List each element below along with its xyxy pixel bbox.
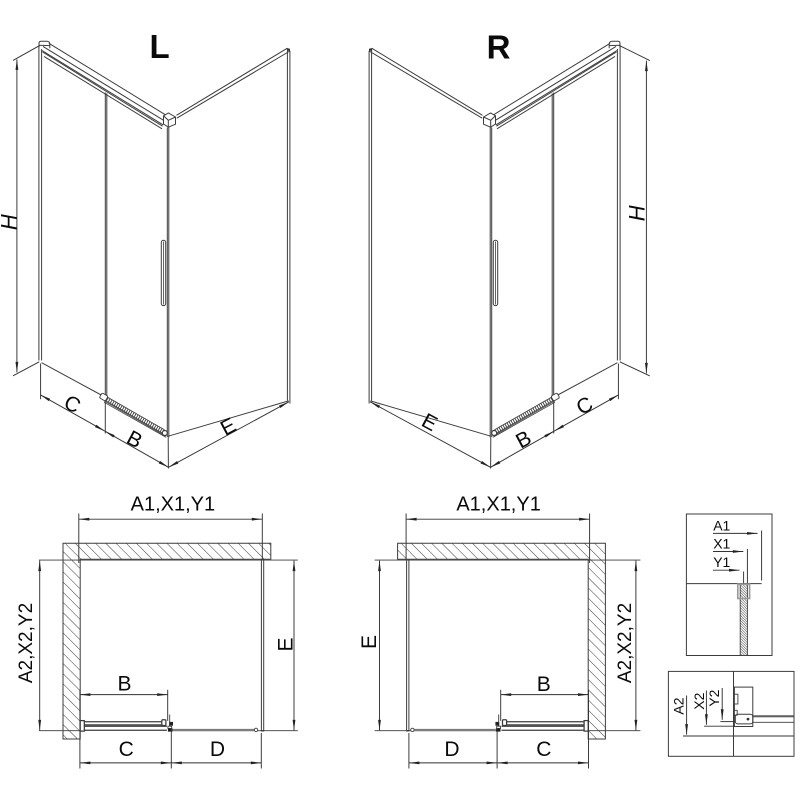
svg-text:B: B bbox=[123, 426, 146, 453]
svg-text:C: C bbox=[119, 738, 134, 761]
svg-text:H: H bbox=[624, 205, 649, 221]
svg-text:L: L bbox=[150, 28, 170, 65]
svg-text:E: E bbox=[418, 409, 441, 436]
svg-text:Y1: Y1 bbox=[713, 554, 730, 570]
svg-text:X1: X1 bbox=[713, 535, 730, 551]
svg-text:B: B bbox=[512, 426, 535, 453]
svg-text:R: R bbox=[487, 29, 511, 66]
svg-text:E: E bbox=[217, 414, 240, 441]
svg-text:X2: X2 bbox=[691, 692, 707, 709]
svg-text:C: C bbox=[573, 392, 597, 419]
svg-text:C: C bbox=[60, 391, 84, 418]
svg-text:H: H bbox=[0, 214, 21, 230]
svg-text:E: E bbox=[358, 635, 381, 649]
svg-text:A1,X1,Y1: A1,X1,Y1 bbox=[131, 494, 216, 516]
svg-text:A2: A2 bbox=[671, 697, 687, 714]
svg-text:C: C bbox=[536, 738, 551, 761]
svg-text:A2,X2,Y2: A2,X2,Y2 bbox=[16, 603, 37, 683]
svg-text:E: E bbox=[275, 637, 298, 651]
svg-text:D: D bbox=[210, 738, 225, 761]
svg-text:B: B bbox=[117, 673, 131, 696]
svg-text:B: B bbox=[537, 673, 551, 696]
svg-text:D: D bbox=[444, 738, 459, 761]
svg-text:Y2: Y2 bbox=[706, 689, 722, 706]
svg-text:A1: A1 bbox=[713, 518, 730, 534]
svg-text:A2,X2,Y2: A2,X2,Y2 bbox=[615, 603, 636, 683]
svg-text:A1,X1,Y1: A1,X1,Y1 bbox=[456, 494, 541, 516]
